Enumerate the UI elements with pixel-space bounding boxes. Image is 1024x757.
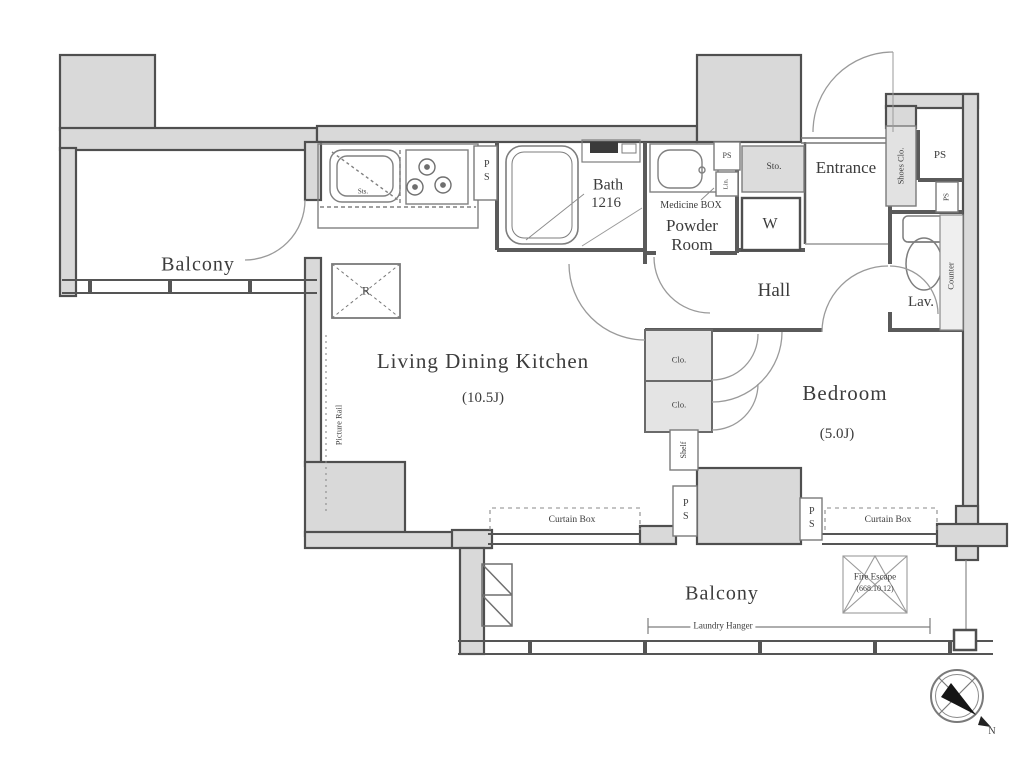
bath-label: Bath — [593, 178, 623, 195]
storage-label: Sto. — [766, 163, 781, 173]
balcony-hatch-box — [482, 564, 512, 626]
powder-room-label-1: Powder — [666, 217, 718, 235]
floor-plan-drawing — [0, 0, 1024, 757]
medicine-box-label: Medicine BOX — [660, 201, 721, 212]
ps-label-bottom-right: PS — [806, 506, 817, 532]
powder-room-label-2: Room — [671, 236, 713, 254]
linen-label: Lin. — [724, 179, 731, 190]
hall-label: Hall — [758, 281, 791, 301]
door-arcs — [245, 52, 938, 430]
picture-rail-label: Picture Rail — [335, 405, 344, 445]
laundry-hanger-label: Laundry Hanger — [690, 621, 755, 630]
lav-label: Lav. — [908, 295, 934, 311]
closet-label-2: Clo. — [672, 401, 686, 410]
curtain-box-label-left: Curtain Box — [546, 516, 599, 526]
compass-north-label: N — [988, 727, 995, 738]
fire-escape-label-2: (668.10.12) — [856, 585, 893, 593]
compass-icon — [931, 670, 991, 727]
balcony-left-label: Balcony — [161, 255, 235, 276]
bedroom-size-label: (5.0J) — [820, 427, 855, 443]
refrigerator-label: R — [362, 285, 370, 298]
boundary-post — [954, 560, 976, 650]
stove-burners — [407, 159, 451, 195]
counter-label: Counter — [947, 262, 956, 289]
washer-label: W — [762, 217, 777, 234]
powder-vanity — [650, 144, 718, 192]
bath-size-label: 1216 — [591, 196, 621, 212]
rail-posts — [88, 280, 952, 654]
ps-label-kitchen: PS — [481, 159, 492, 185]
bedroom-label: Bedroom — [802, 382, 887, 404]
closet-label-1: Clo. — [672, 356, 686, 365]
ldk-size-label: (10.5J) — [462, 391, 504, 407]
shoes-closet-label: Shoes Clo. — [897, 148, 906, 185]
bath-faucet — [590, 142, 618, 153]
floor-plan: Balcony Living Dining Kitchen (10.5J) Be… — [0, 0, 1024, 757]
sink-label: Sts. — [358, 188, 368, 195]
fire-escape-label-1: Fire Escape — [854, 572, 896, 581]
kitchen-counter — [318, 144, 478, 228]
ps-label-bottom-left: PS — [680, 498, 691, 524]
toilet — [903, 216, 945, 290]
curtain-box-label-right: Curtain Box — [862, 516, 915, 526]
ldk-label: Living Dining Kitchen — [377, 350, 589, 372]
bedroom-closet — [645, 330, 712, 432]
balcony-bottom-label: Balcony — [685, 584, 759, 605]
ps-label-top-right: PS — [934, 150, 946, 162]
entrance-label: Entrance — [816, 159, 876, 177]
ps-label-right-small: PS — [943, 193, 950, 201]
shelf-label: Shelf — [680, 442, 688, 459]
ps-label-powder: PS — [723, 152, 732, 160]
